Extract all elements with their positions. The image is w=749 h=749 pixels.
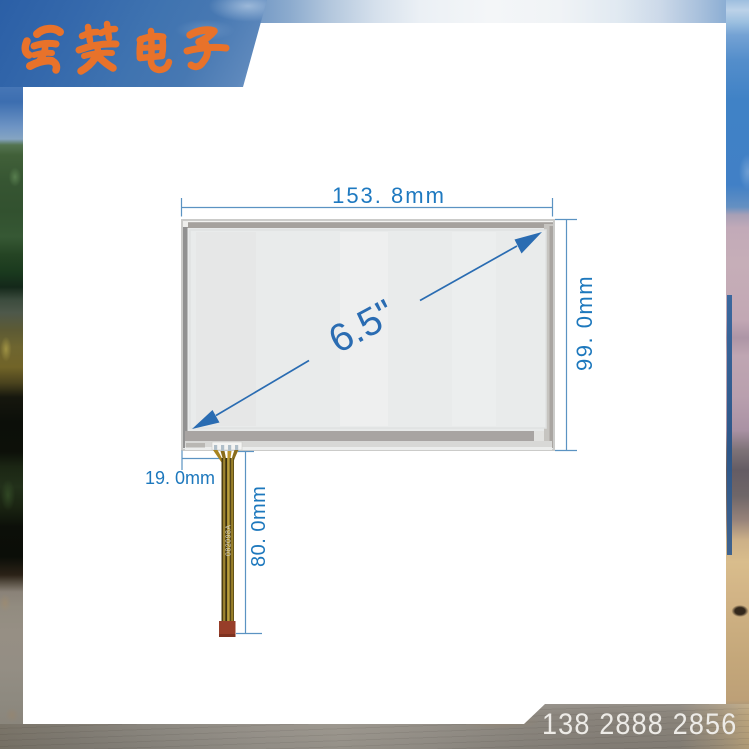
svg-text:80. 0mm: 80. 0mm <box>248 486 270 567</box>
svg-text:99. 0mm: 99. 0mm <box>572 275 597 371</box>
svg-text:19. 0mm: 19. 0mm <box>145 468 215 488</box>
svg-text:082098A: 082098A <box>226 524 233 556</box>
svg-text:153. 8mm: 153. 8mm <box>332 183 446 208</box>
